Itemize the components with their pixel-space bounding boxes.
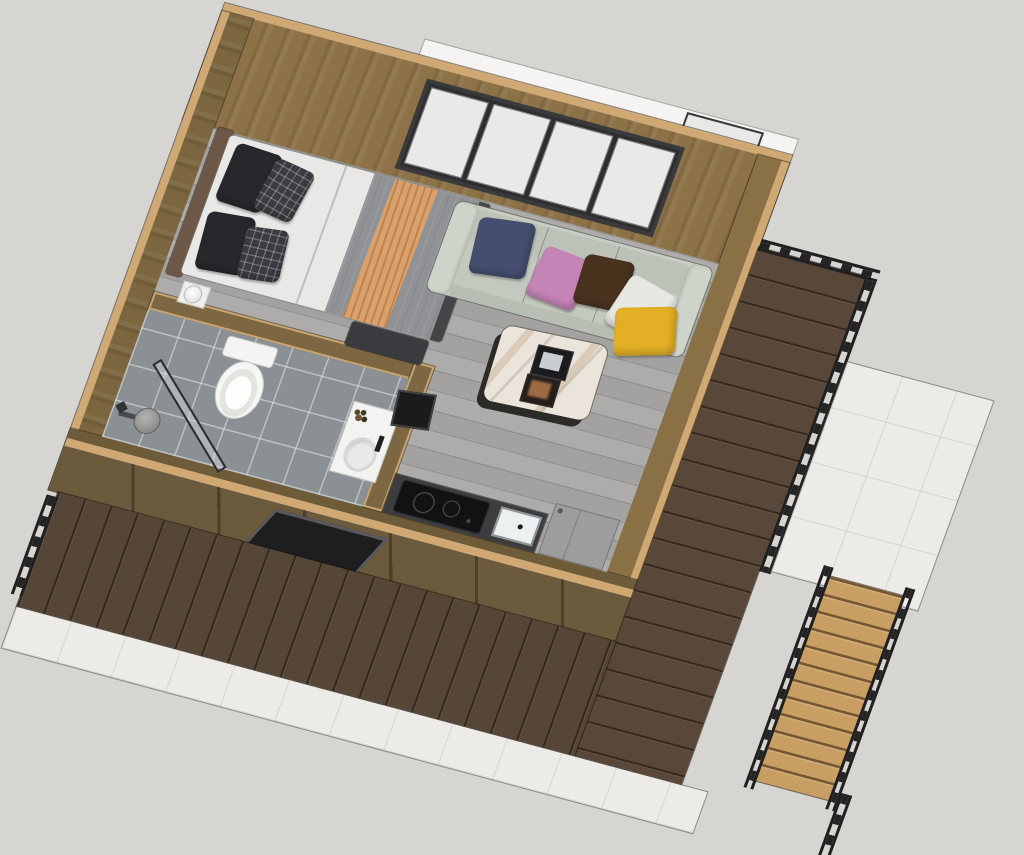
sofa-pillow-yellow <box>612 307 677 356</box>
floorplan-render-scene <box>0 0 1024 855</box>
deck-railing-southeast <box>800 793 852 855</box>
refrigerator-seam <box>562 510 581 559</box>
magazine-photo-gray <box>539 352 564 372</box>
magazine-tray-bottom <box>519 373 561 408</box>
magazine-photo-orange <box>527 380 552 400</box>
bathroom-mirror <box>390 390 437 431</box>
model-world <box>0 3 1024 855</box>
refrigerator-hinge <box>557 508 564 514</box>
